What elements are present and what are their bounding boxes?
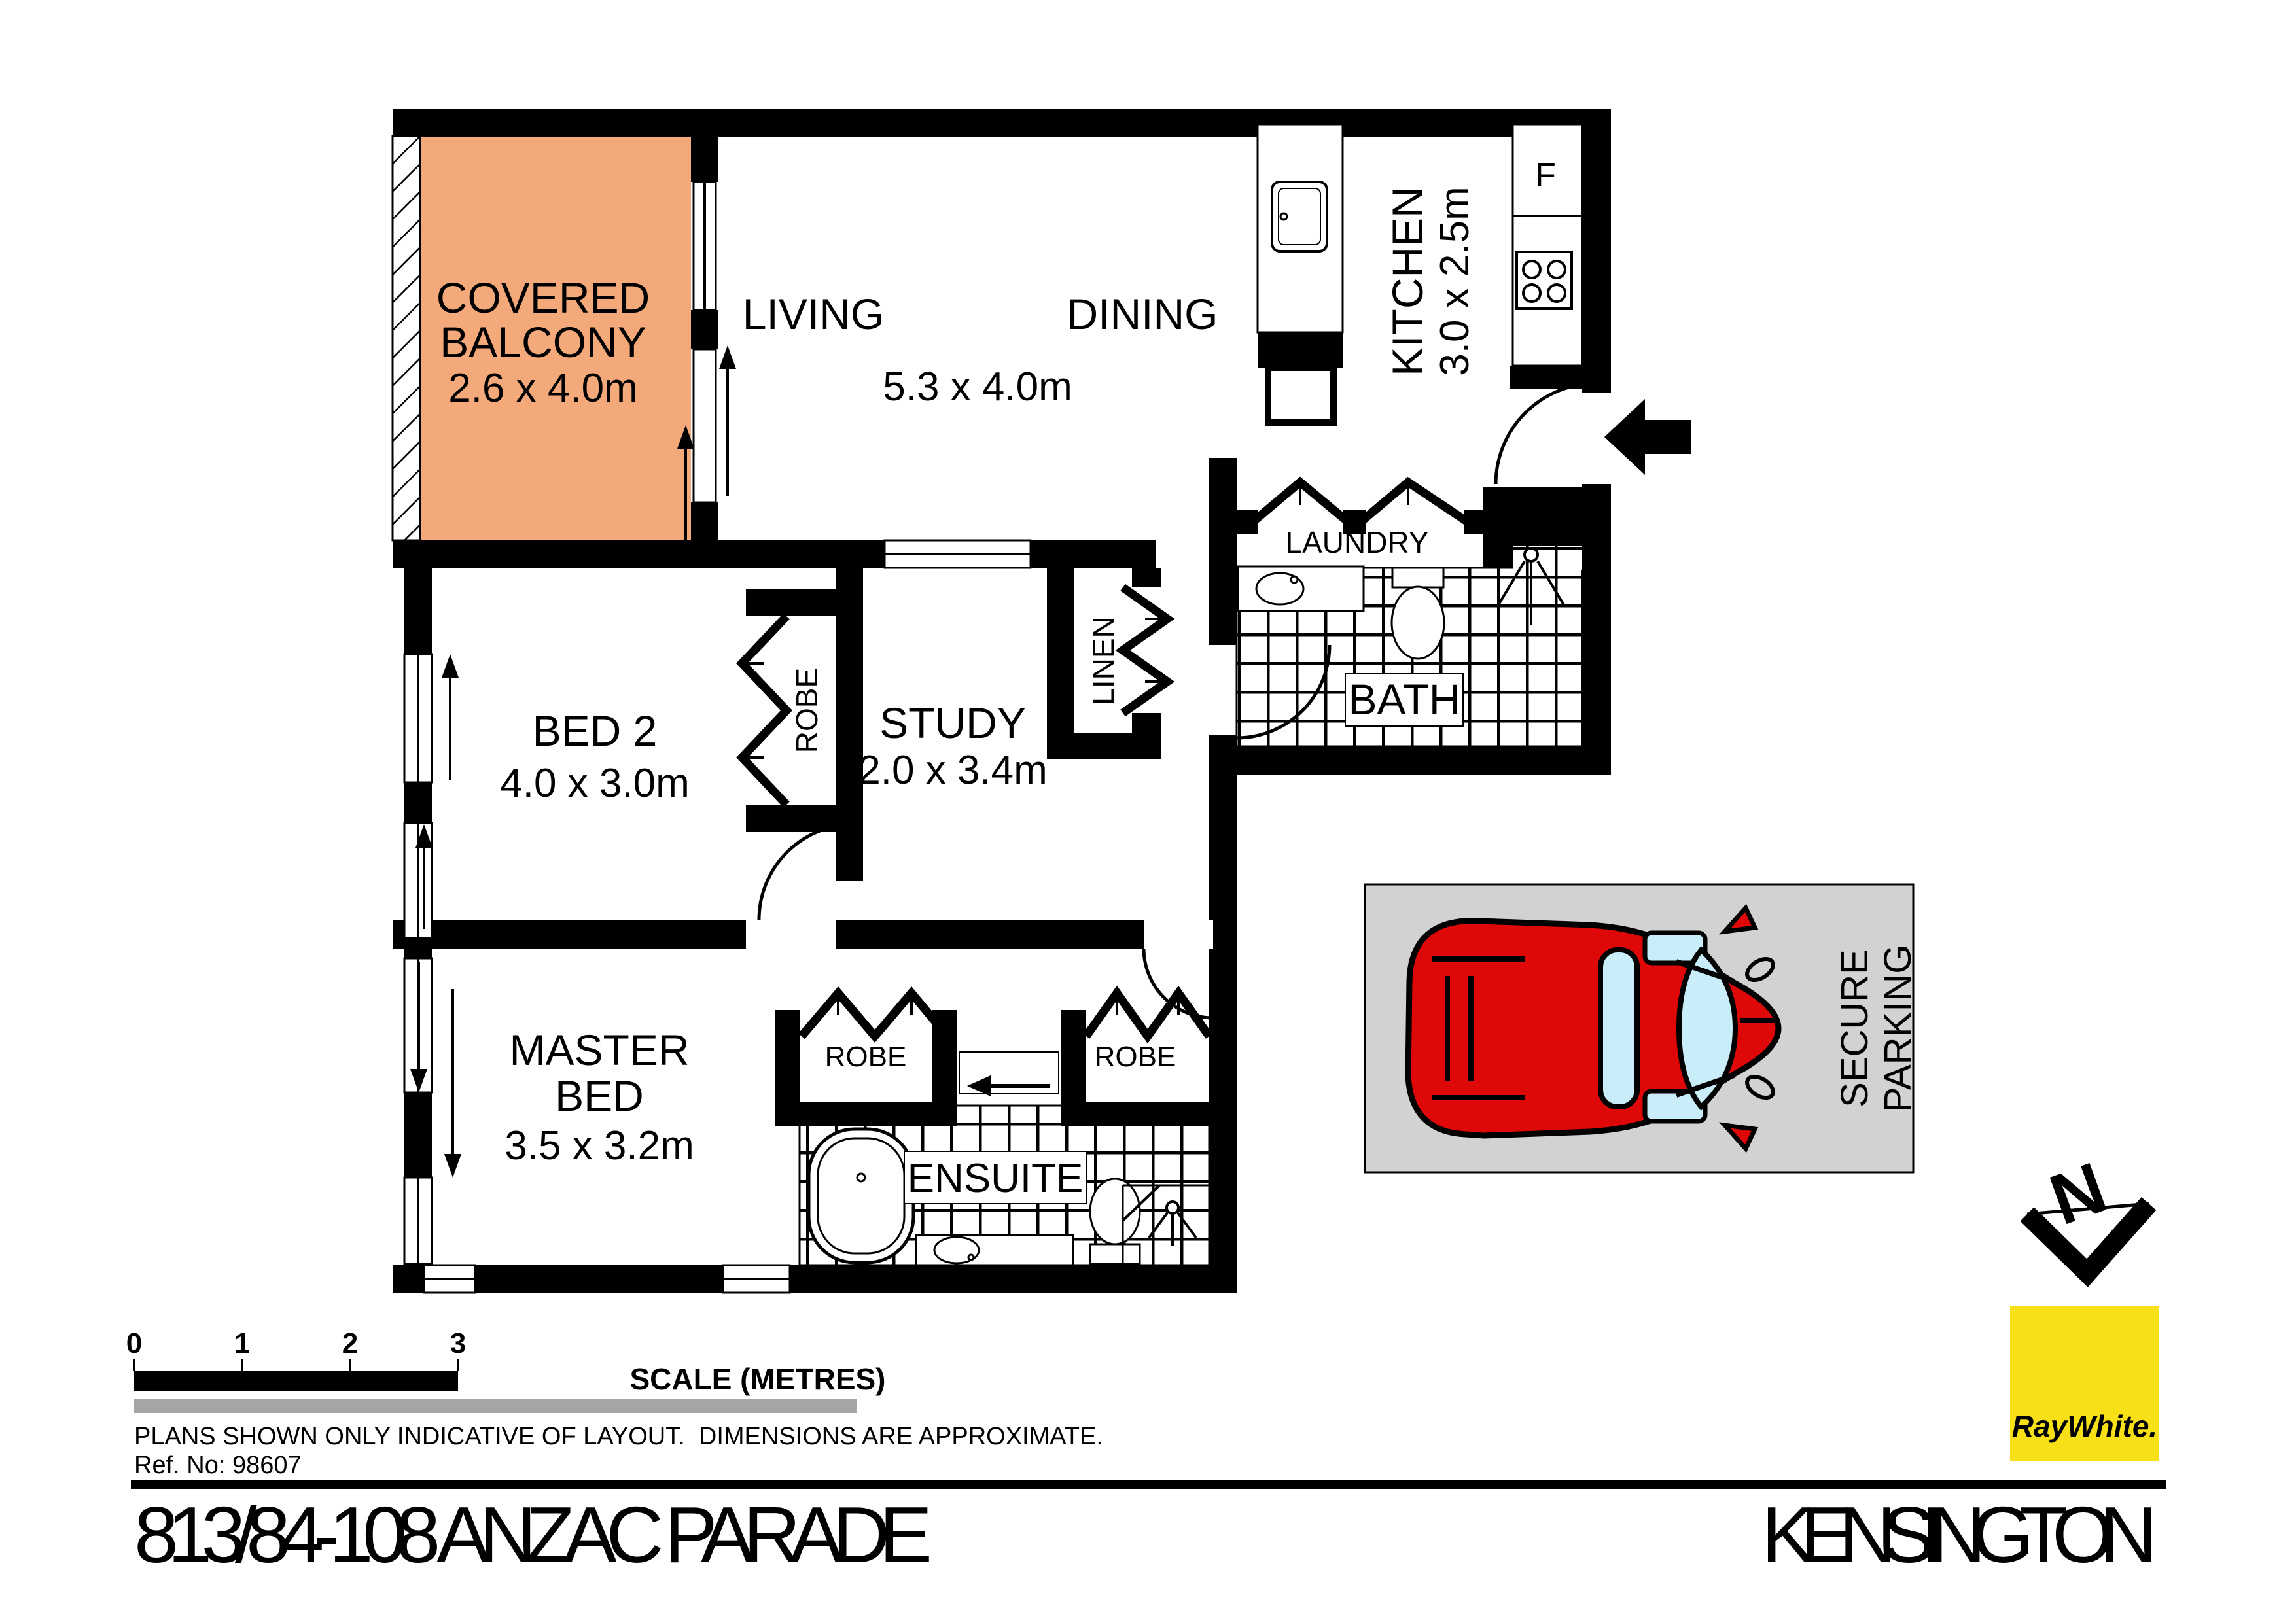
raywhite-logo-text: RayWhite. [2012,1409,2157,1443]
bed2-label: BED 2 [533,707,658,755]
scale-bar: 0 1 2 3 SCALE (METRES) [126,1327,886,1413]
footer-rule [131,1480,2166,1489]
laundry-bifold-icon [1246,482,1475,527]
floorplan-page: COVERED BALCONY 2.6 x 4.0m LIVING DINING… [0,0,2296,1623]
balcony-sliding-door [694,349,716,502]
master-window-2 [404,1178,432,1264]
study-label: STUDY [879,699,1026,747]
bottom-window-1 [424,1265,475,1293]
gray-divider [134,1399,857,1413]
master-robe-right-label: ROBE [1095,1041,1176,1073]
living-dining-dims: 5.3 x 4.0m [883,364,1072,410]
linen-label: LINEN [1086,616,1120,705]
bed2-dims: 4.0 x 3.0m [500,761,689,806]
balcony-label: COVERED [436,273,650,322]
balcony-hatched-edge [393,136,420,540]
bed2-door-opening [746,920,836,949]
bath-shower-tiles [1513,546,1582,570]
disclaimer-text: PLANS SHOWN ONLY INDICATIVE OF LAYOUT. D… [134,1423,1103,1450]
ensuite-label: ENSUITE [908,1156,1084,1201]
study-dims: 2.0 x 3.4m [858,748,1047,793]
bath-toilet-icon [1392,587,1444,659]
raywhite-logo: RayWhite. [2010,1306,2159,1461]
bed2-robe-bifold-icon [742,616,786,805]
entry-arrow-icon [1604,399,1691,475]
master-robe-left-label: ROBE [825,1041,907,1073]
secure-parking: SECURE PARKING [1365,884,1919,1172]
scale-tick-3: 3 [450,1327,466,1359]
balcony-sliding-window [694,182,716,310]
bath-toilet-tank [1392,568,1443,587]
master-label: MASTER [509,1026,689,1074]
property-address: 813/84-108 ANZAC PARADE [134,1490,932,1579]
master-label2: BED [555,1072,644,1120]
laundry-label: LAUNDRY [1286,525,1429,559]
bath-label: BATH [1348,675,1460,724]
kitchen-dims: 3.0 x 2.5m [1432,186,1477,375]
scale-tick-0: 0 [126,1327,142,1359]
ref-number: Ref. No: 98607 [134,1452,302,1479]
parking-label: SECURE [1833,949,1876,1108]
master-robe-right-bifold-icon [1086,993,1209,1036]
ensuite-shower-icon [1167,1202,1178,1213]
entry-door-arc [1496,383,1597,484]
bathtub-icon [809,1129,913,1263]
fridge-label: F [1535,156,1556,194]
dining-label: DINING [1067,290,1218,338]
kitchen-label: KITCHEN [1383,186,1432,376]
linen-bifold-icon [1123,587,1167,713]
stove-icon [1517,252,1572,309]
bed2-arrow-icon [442,654,459,678]
living-label: LIVING [743,290,884,338]
master-arrow2-icon [444,1154,461,1178]
balcony-dims: 2.6 x 4.0m [448,366,637,411]
north-arrow: N [2027,1147,2149,1273]
kitchen-appliance-box [1268,368,1333,423]
scale-tick-1: 1 [234,1327,250,1359]
floorplan-drawing: COVERED BALCONY 2.6 x 4.0m LIVING DINING… [0,0,2296,1623]
master-door-opening [1144,920,1213,949]
bath-shower-icon [1525,548,1538,561]
bed2-robe-label: ROBE [790,668,824,753]
scale-label: SCALE (METRES) [630,1362,886,1396]
parking-label2: PARKING [1877,945,1919,1113]
scale-tick-2: 2 [342,1327,358,1359]
balcony-arrow-icon [719,345,736,369]
ensuite-toilet-tank [1090,1244,1140,1264]
bottom-window-2 [723,1265,790,1293]
balcony-label2: BALCONY [440,318,646,366]
scale-bar-rule [134,1371,458,1391]
bed2-window-1 [404,654,432,782]
master-robe-left-bifold-icon [802,993,947,1036]
car-rear-window [1600,950,1637,1107]
suburb-name: KENSINGTON [1761,1490,2157,1579]
study-window [885,540,1031,568]
master-dims: 3.5 x 3.2m [504,1123,694,1168]
